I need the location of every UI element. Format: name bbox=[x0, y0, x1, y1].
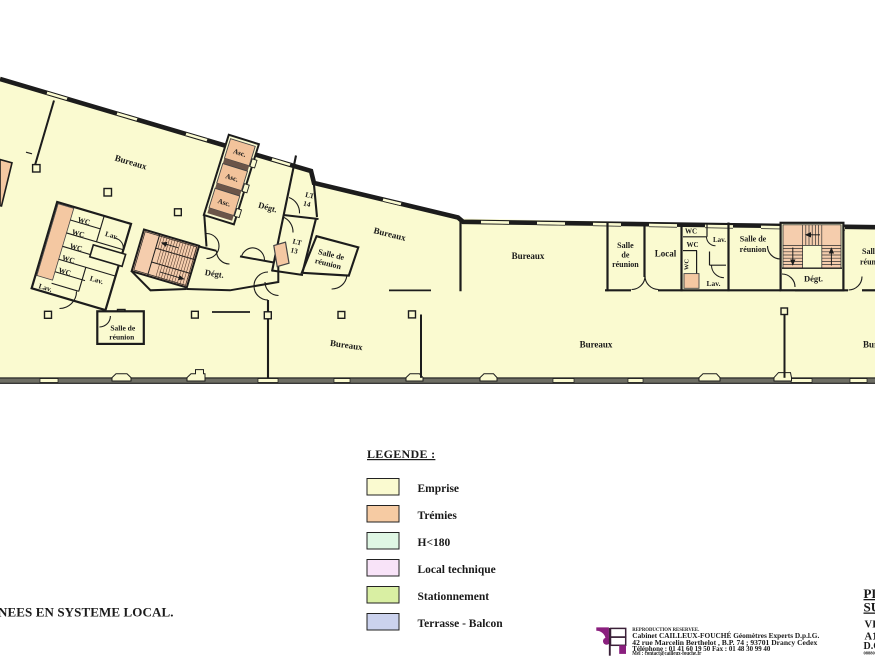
svg-text:Lav.: Lav. bbox=[713, 236, 726, 244]
svg-text:Trémies: Trémies bbox=[418, 510, 458, 522]
svg-text:de: de bbox=[621, 251, 629, 260]
svg-text:08880: 08880 bbox=[864, 651, 875, 656]
svg-text:Salle: Salle bbox=[862, 247, 875, 256]
svg-text:Terrasse - Balcon: Terrasse - Balcon bbox=[418, 618, 504, 630]
svg-text:Salle de: Salle de bbox=[110, 324, 135, 333]
svg-text:NEES EN SYSTEME LOCAL.: NEES EN SYSTEME LOCAL. bbox=[0, 605, 174, 620]
svg-text:WC: WC bbox=[685, 228, 697, 236]
svg-text:H<180: H<180 bbox=[418, 537, 451, 549]
svg-text:Emprise: Emprise bbox=[418, 483, 460, 495]
svg-text:Bureaux: Bureaux bbox=[863, 340, 875, 350]
svg-text:WC: WC bbox=[686, 241, 698, 249]
svg-text:Local: Local bbox=[655, 249, 677, 259]
svg-text:Bureaux: Bureaux bbox=[512, 251, 545, 261]
svg-text:WC: WC bbox=[684, 259, 691, 271]
svg-text:Dégt.: Dégt. bbox=[804, 274, 823, 284]
svg-text:Lav.: Lav. bbox=[707, 279, 721, 288]
svg-text:Salle: Salle bbox=[617, 241, 634, 250]
svg-text:réunion: réunion bbox=[109, 333, 135, 342]
svg-text:Local technique: Local technique bbox=[418, 564, 496, 576]
svg-text:Stationnement: Stationnement bbox=[418, 591, 490, 603]
svg-text:Bureaux: Bureaux bbox=[580, 340, 613, 350]
svg-text:SURF: SURF bbox=[864, 600, 875, 615]
svg-text:réunion: réunion bbox=[740, 245, 767, 254]
svg-text:Salle de: Salle de bbox=[740, 235, 767, 244]
svg-text:réunion: réunion bbox=[860, 258, 875, 267]
svg-text:Mél : contact@cailleux-fouche.: Mél : contact@cailleux-fouche.fr bbox=[632, 651, 701, 656]
svg-text:réunion: réunion bbox=[612, 260, 639, 269]
svg-text:LEGENDE :: LEGENDE : bbox=[367, 447, 435, 461]
svg-text:VILLE: VILLE bbox=[865, 620, 875, 631]
